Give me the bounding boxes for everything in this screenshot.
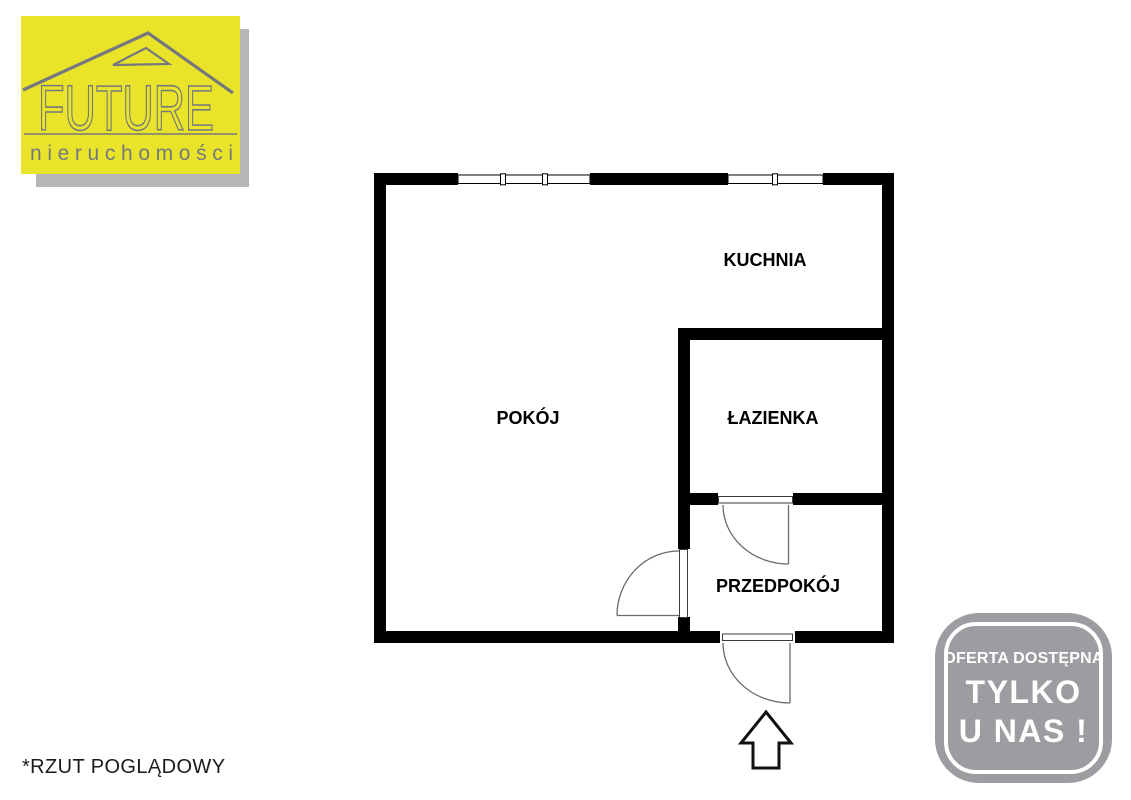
disclaimer-note: *RZUT POGLĄDOWY <box>22 756 225 779</box>
room-label-lazienka: ŁAZIENKA <box>728 408 819 428</box>
room-door <box>617 551 679 616</box>
badge-text: OFERTA DOSTĘPNA TYLKO U NAS ! <box>935 613 1112 783</box>
badge-line-3: U NAS ! <box>959 713 1089 750</box>
bathroom-door-frame <box>719 497 793 504</box>
entrance-door-frame <box>723 634 793 641</box>
room-label-przedpokoj: PRZEDPOKÓJ <box>716 575 840 596</box>
room-label-pokoj: POKÓJ <box>496 407 559 428</box>
window-1-divider-a <box>501 174 506 185</box>
window-2-divider <box>773 174 778 185</box>
exclusive-offer-badge: OFERTA DOSTĘPNA TYLKO U NAS ! <box>935 613 1112 783</box>
window-1 <box>458 175 590 184</box>
room-door-frame <box>680 550 688 618</box>
badge-line-1: OFERTA DOSTĘPNA <box>943 649 1103 669</box>
room-label-kuchnia: KUCHNIA <box>724 250 807 270</box>
badge-line-2: TYLKO <box>966 674 1082 711</box>
entrance-arrow-icon <box>741 712 791 768</box>
bathroom-door <box>723 505 789 564</box>
page: FUTURE nieruchomości <box>0 0 1131 800</box>
door-swings <box>617 505 790 703</box>
window-1-divider-b <box>543 174 548 185</box>
door-frames <box>680 497 793 641</box>
entrance-door <box>723 643 790 703</box>
